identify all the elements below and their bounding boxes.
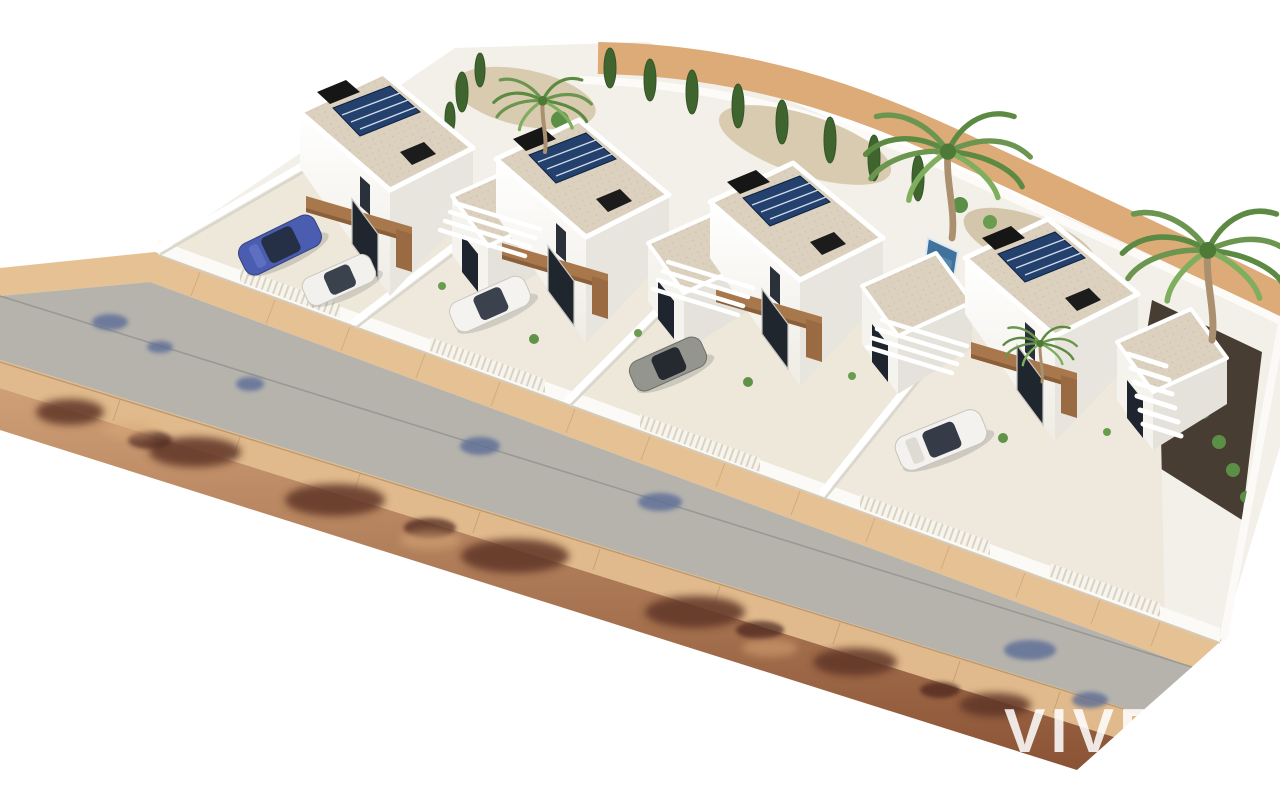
watermark-logo-text: VIVE [1004, 697, 1165, 766]
architectural-render: Aerial 3D visualisation of a new-build d… [0, 0, 1280, 800]
watermark-tagline: EST [1121, 767, 1169, 783]
render-canvas: VIVE EST [0, 0, 1280, 800]
